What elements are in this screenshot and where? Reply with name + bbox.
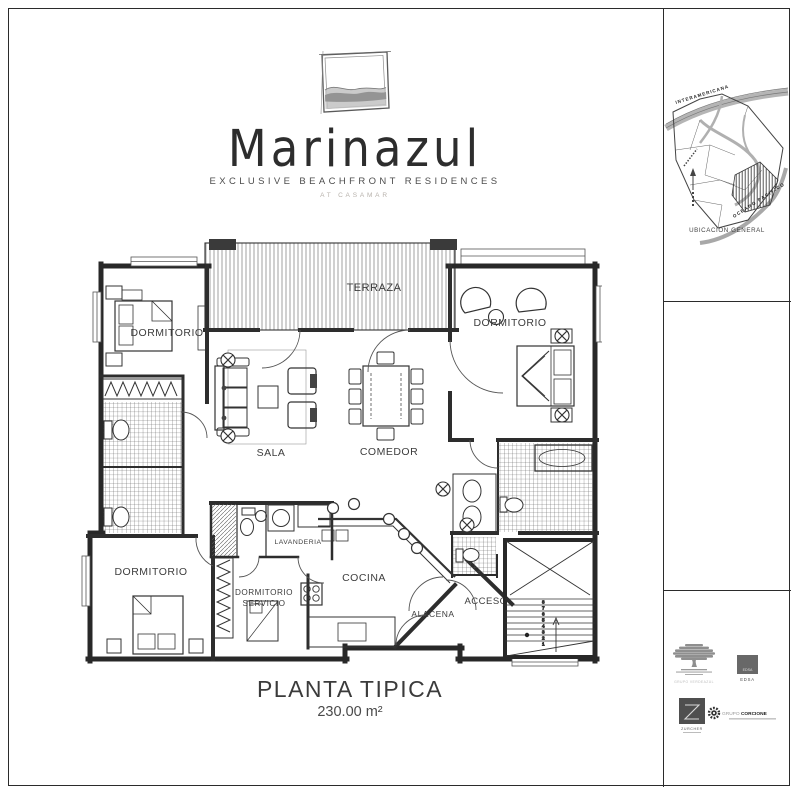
brand-name: Marinazul (228, 122, 482, 175)
location-map: INTERAMERICANA OCEANO PACIFICO UBICACION… (664, 10, 791, 300)
closet-service (214, 558, 233, 638)
drawing-sheet: Marinazul EXCLUSIVE BEACHFRONT RESIDENCE… (0, 0, 800, 796)
floor-plan: TERRAZA (80, 228, 602, 670)
room-label-cocina: COCINA (342, 572, 386, 584)
pantry-entry: ALACENA ACCESO (411, 596, 507, 619)
svg-text:GRUPO CORCIONE: GRUPO CORCIONE (722, 711, 768, 717)
map-north-arrow (684, 149, 697, 208)
brand-block: Marinazul EXCLUSIVE BEACHFRONT RESIDENCE… (155, 48, 555, 199)
room-label-sala: SALA (257, 447, 286, 459)
kitchen: COCINA (301, 499, 455, 648)
stair-step-8: 8 (542, 600, 545, 605)
brand-sketch-logo-icon (312, 48, 398, 120)
sala: SALA (215, 350, 317, 459)
stair-step-4: 4 (542, 624, 545, 629)
corcione-name-text: CORCIONE (741, 711, 768, 717)
stair-step-6: 6 (542, 612, 545, 617)
room-label-dormitorio-der: DORMITORIO (473, 317, 546, 329)
plan-area: 230.00 m² (130, 704, 570, 720)
stair-step-7: 7 (542, 606, 545, 611)
bathroom-left (103, 402, 183, 533)
bathroom-right (436, 443, 593, 574)
stair-step-5: 5 (542, 618, 545, 623)
bedroom-bottom-left: DORMITORIO (107, 566, 203, 654)
comedor: COMEDOR (349, 352, 423, 458)
room-label-servicio-2: SERVICIO (243, 599, 286, 608)
closet-master (103, 379, 183, 399)
map-caption: UBICACION GENERAL (689, 227, 765, 234)
stair-step-1: 1 (542, 642, 545, 647)
corcione-grupo-text: GRUPO (722, 711, 740, 717)
room-label-acceso: ACCESO (464, 596, 507, 607)
room-label-dormitorio-inf: DORMITORIO (114, 566, 187, 578)
partner-logos: GRUPO VERDEAZUL EDSA EDSA ZURCHER GRUPO … (664, 592, 791, 786)
room-label-alacena: ALACENA (411, 609, 454, 619)
brand-tagline: AT CASAMAR (155, 192, 555, 199)
verdeazul-tree-icon: GRUPO VERDEAZUL (673, 644, 715, 684)
corcione-logo: GRUPO CORCIONE (709, 708, 776, 720)
bedroom-service: DORMITORIO SERVICIO (235, 588, 293, 641)
zurcher-logo: ZURCHER (679, 698, 705, 733)
room-label-lavanderia: LAVANDERIA (274, 539, 321, 546)
verdeazul-caption: GRUPO VERDEAZUL (674, 680, 714, 684)
sidebar-section-divider-top (664, 301, 791, 302)
door-arcs (181, 330, 503, 645)
bedroom-right: DORMITORIO (461, 287, 574, 422)
stair-step-2: 2 (542, 636, 545, 641)
room-label-dormitorio-izq: DORMITORIO (130, 327, 203, 339)
edsa-logo: EDSA EDSA (737, 655, 758, 682)
plan-title: PLANTA TIPICA (130, 676, 570, 703)
edsa-caption: EDSA (740, 677, 755, 682)
zurcher-caption: ZURCHER (681, 727, 703, 731)
room-label-comedor: COMEDOR (360, 446, 418, 458)
edsa-mark-text: EDSA (743, 668, 753, 672)
room-label-terraza: TERRAZA (347, 282, 402, 294)
service-bath-laundry: LAVANDERIA (212, 504, 330, 556)
bedroom-top-left: DORMITORIO (106, 286, 206, 366)
room-terraza: TERRAZA (205, 239, 457, 330)
room-label-servicio-1: DORMITORIO (235, 588, 293, 597)
window-band-top-right (461, 249, 585, 264)
sidebar-section-divider-bottom (664, 590, 791, 591)
stair-step-3: 3 (542, 630, 545, 635)
stairs: 8 7 6 5 4 3 2 1 (505, 540, 595, 657)
